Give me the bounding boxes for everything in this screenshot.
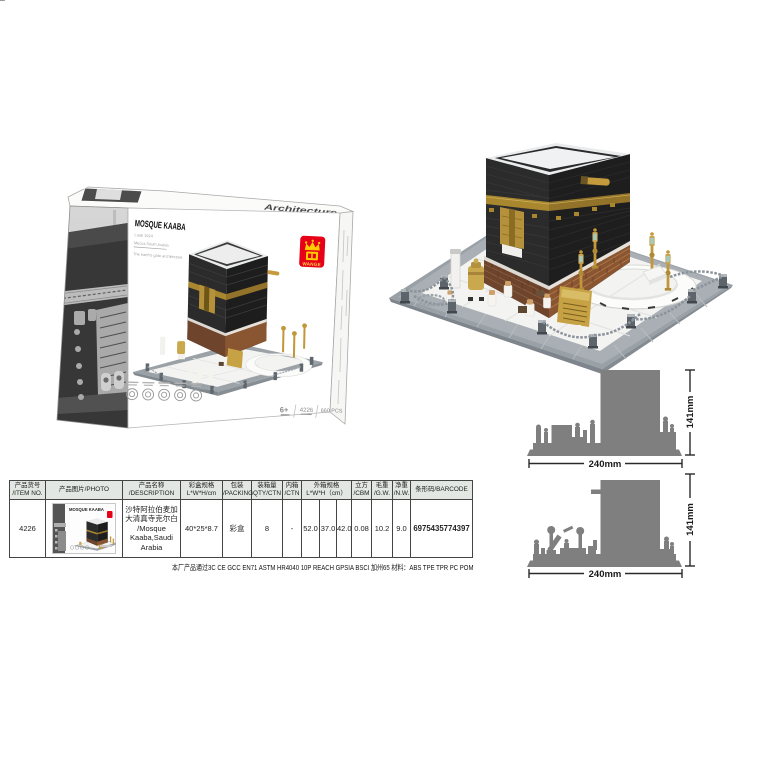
svg-text:141mm: 141mm <box>685 503 696 536</box>
svg-text:WANGE: WANGE <box>302 261 321 267</box>
svg-text:6+: 6+ <box>280 405 289 414</box>
svg-text:141mm: 141mm <box>685 396 696 429</box>
svg-text:MOSQUE KAABA: MOSQUE KAABA <box>69 507 104 512</box>
svg-text:660 PCS: 660 PCS <box>321 408 343 414</box>
svg-text:240mm: 240mm <box>589 569 622 580</box>
svg-text:4226: 4226 <box>300 408 314 414</box>
svg-text:240mm: 240mm <box>589 459 622 470</box>
